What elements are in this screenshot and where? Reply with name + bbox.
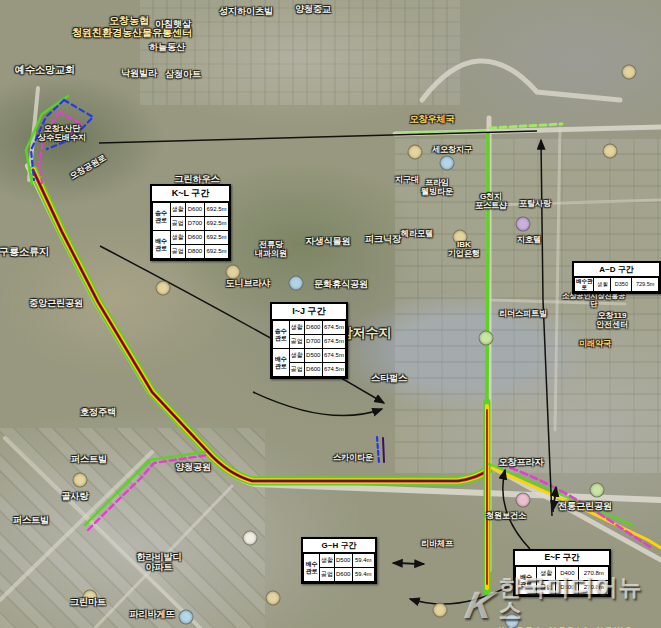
pipe-diameter-cell: D600 bbox=[304, 363, 322, 377]
map-label: 오창농협 bbox=[109, 15, 149, 27]
pipe-diameter-cell: D600 bbox=[185, 231, 204, 245]
map-label: 청원보건소 bbox=[486, 511, 526, 520]
map-label: 스타펄스 bbox=[371, 373, 407, 383]
pipe-diameter-cell: D500 bbox=[556, 581, 579, 595]
map-label: 리바체프 bbox=[421, 539, 453, 548]
pipe-length-cell: 674.5m bbox=[322, 349, 345, 363]
pipe-diameter-cell: D500 bbox=[334, 554, 352, 568]
table-row: 배수 관로생활D600692.5m bbox=[153, 231, 229, 245]
pipe-diameter-cell: D700 bbox=[185, 217, 204, 231]
map-label: 전류당 내과의원 bbox=[255, 240, 287, 258]
pipeline-bundle-purple bbox=[33, 170, 488, 481]
poi-dot bbox=[433, 603, 448, 618]
map-label: 양청중교 bbox=[295, 4, 331, 14]
table-row: 배수관로생활D350729.5m bbox=[575, 278, 659, 292]
map-label: 그린마트 bbox=[70, 597, 106, 607]
pipe-type-cell: 공업 bbox=[170, 217, 185, 231]
pipeline-bundle-yellow bbox=[33, 170, 488, 481]
map-label: 문화휴식공원 bbox=[314, 279, 368, 289]
pipe-type-cell: 생활 bbox=[320, 554, 334, 568]
map-label: 양청공원 bbox=[175, 462, 211, 472]
map-label: 예수소망교회 bbox=[15, 64, 75, 76]
pipe-group-cell: 배수 관로 bbox=[273, 349, 290, 377]
map-label: 성지하이츠빌 bbox=[219, 6, 273, 16]
table-row: 송수 관로생활D600674.5m bbox=[273, 321, 346, 335]
pipe-diameter-cell: D400 bbox=[556, 567, 579, 581]
pipe-type-cell: 생활 bbox=[170, 203, 185, 217]
poi-dot bbox=[179, 610, 194, 625]
pipe-length-cell: 692.5m bbox=[204, 203, 228, 217]
section-table: 송수 관로생활D600674.5m공업D700674.5m배수 관로생활D500… bbox=[272, 320, 346, 377]
pipe-type-cell: 공업 bbox=[537, 581, 556, 595]
pipe-length-cell: 674.5m bbox=[322, 335, 345, 349]
map-label: 자생식물원 bbox=[306, 236, 351, 246]
section-table: 배수 관로생활D50059.4m공업D60059.4m bbox=[303, 553, 375, 582]
line-north-boundary bbox=[99, 131, 537, 143]
section-title: I~J 구간 bbox=[272, 304, 346, 320]
map-label: G천지 포스트샵 bbox=[475, 192, 507, 210]
poi-dot bbox=[603, 144, 618, 159]
pipe-diameter-cell: D600 bbox=[185, 203, 204, 217]
pipe-group-cell: 송수 관로 bbox=[273, 321, 290, 349]
pipe-type-cell: 공업 bbox=[289, 363, 304, 377]
map-label: 오창우체국 bbox=[410, 114, 455, 124]
map-label: 리더스피트빌 bbox=[499, 309, 547, 318]
road-grid-east-3 bbox=[555, 128, 560, 430]
pipe-diameter-cell: D350 bbox=[611, 278, 632, 292]
pipe-length-cell: 59.4m bbox=[352, 554, 374, 568]
section-box-kl[interactable]: K~L 구간 송수 관로생활D600692.5m공업D700692.5m배수 관… bbox=[150, 184, 231, 261]
table-row: 배수 관로생활D50059.4m bbox=[304, 554, 375, 568]
map-label: 아침햇살 bbox=[155, 19, 191, 29]
poi-dot bbox=[440, 156, 455, 171]
pipe-diameter-cell: D700 bbox=[304, 335, 322, 349]
map-label: 지구대 bbox=[395, 175, 419, 184]
section-box-gh[interactable]: G~H 구간 배수 관로생활D50059.4m공업D60059.4m bbox=[301, 537, 377, 584]
pipeline-bundle-red bbox=[33, 170, 488, 481]
map-label: 파리바게뜨 bbox=[130, 609, 175, 619]
table-row: 배수 관로생활D500674.5m bbox=[273, 349, 346, 363]
pipe-length-cell: 674.5m bbox=[322, 321, 345, 335]
arrow-gh-double-left bbox=[393, 563, 424, 564]
map-label: 프라임 웰빙타운 bbox=[421, 178, 453, 196]
road-ring-north bbox=[422, 61, 620, 100]
map-screenshot: 오창농협청원친환경농산물유통센터예수소망교회아침햇살하늘동산낙원빌라삼청아트성지… bbox=[0, 0, 661, 628]
map-label: 세오창지구 bbox=[432, 145, 472, 154]
map-label: 스카이타운 bbox=[333, 453, 373, 462]
pipe-length-cell: 729.5m bbox=[632, 278, 659, 292]
pipe-length-cell: 692.5m bbox=[204, 217, 228, 231]
section-box-ef[interactable]: E~F 구간 배수 관로생활D400270.8m공업D500270.8m bbox=[513, 549, 611, 597]
pipe-diameter-cell: D600 bbox=[304, 321, 322, 335]
pipe-length-cell: 692.5m bbox=[204, 245, 228, 259]
pipe-group-cell: 배수 관로 bbox=[153, 231, 171, 259]
section-box-ad[interactable]: A~D 구간 배수관로생활D350729.5m bbox=[572, 261, 661, 294]
section-title: A~D 구간 bbox=[574, 263, 659, 277]
map-label: 퍼스트빌 bbox=[71, 454, 107, 464]
pipe-type-cell: 생활 bbox=[289, 349, 304, 363]
table-row: 배수 관로생활D400270.8m bbox=[516, 567, 609, 581]
map-label: 낙원빌라 bbox=[121, 68, 157, 78]
poi-dot bbox=[73, 473, 88, 488]
poi-dot bbox=[479, 331, 494, 346]
pipe-type-cell: 공업 bbox=[170, 245, 185, 259]
poi-dot bbox=[516, 493, 531, 508]
section-title: E~F 구간 bbox=[515, 551, 609, 566]
poi-dot bbox=[156, 281, 171, 296]
pipe-group-cell: 배수관로 bbox=[575, 278, 594, 292]
section-table: 배수관로생활D350729.5m bbox=[574, 277, 659, 292]
map-label: 하늘동산 bbox=[149, 42, 185, 52]
map-label: 호정주택 bbox=[80, 407, 116, 417]
map-label: 전통근린공원 bbox=[558, 501, 612, 511]
pipe-type-cell: 생활 bbox=[289, 321, 304, 335]
poi-dot bbox=[622, 65, 637, 80]
section-table: 배수 관로생활D400270.8m공업D500270.8m bbox=[515, 566, 609, 595]
map-label: 구룡소류지 bbox=[0, 246, 49, 258]
poi-dot bbox=[516, 217, 531, 232]
pipe-length-cell: 270.8m bbox=[579, 567, 609, 581]
table-row: 송수 관로생활D600692.5m bbox=[153, 203, 229, 217]
map-label: 골사랑 bbox=[62, 491, 89, 501]
section-box-ij[interactable]: I~J 구간 송수 관로생활D600674.5m공업D700674.5m배수 관… bbox=[270, 302, 348, 379]
section-title: G~H 구간 bbox=[303, 539, 375, 553]
pipe-diameter-cell: D500 bbox=[304, 349, 322, 363]
pipeline-bundle-green bbox=[33, 170, 488, 481]
dashed-blue-center bbox=[377, 437, 379, 463]
pipeline-green-north bbox=[487, 134, 488, 402]
arrow-ij-to-route bbox=[253, 392, 382, 416]
arrow-ef-to-market bbox=[410, 584, 513, 604]
pipe-length-cell: 270.8m bbox=[579, 581, 609, 595]
poi-dot bbox=[505, 614, 520, 628]
poi-dot bbox=[243, 531, 258, 546]
pipe-type-cell: 공업 bbox=[320, 568, 334, 582]
map-label: 오창119 안전센터 bbox=[596, 311, 628, 329]
poi-dot bbox=[289, 276, 304, 291]
pipe-group-cell: 송수 관로 bbox=[153, 203, 171, 231]
map-label: 포탈사랑 bbox=[519, 199, 551, 208]
pipe-length-cell: 692.5m bbox=[204, 231, 228, 245]
map-label: 오창1산단 상수도배수지 bbox=[38, 124, 86, 142]
pipe-diameter-cell: D600 bbox=[334, 568, 352, 582]
map-label: 그린하우스 bbox=[175, 174, 220, 184]
pipe-type-cell: 공업 bbox=[289, 335, 304, 349]
pipe-group-cell: 배수 관로 bbox=[304, 554, 320, 582]
pipe-group-cell: 배수 관로 bbox=[516, 567, 537, 595]
map-label: 소상공인시장진흥공단 bbox=[561, 292, 628, 308]
map-label: 한라비발디 아파트 bbox=[137, 552, 182, 573]
poi-dot bbox=[590, 483, 605, 498]
map-label: 삼청아트 bbox=[165, 69, 201, 79]
poi-dot bbox=[408, 145, 423, 160]
pipe-type-cell: 생활 bbox=[594, 278, 611, 292]
pipe-type-cell: 생활 bbox=[537, 567, 556, 581]
map-label: 미래약국 bbox=[579, 339, 611, 348]
pipe-length-cell: 59.4m bbox=[352, 568, 374, 582]
pipe-length-cell: 674.5m bbox=[322, 363, 345, 377]
section-table: 송수 관로생활D600692.5m공업D700692.5m배수 관로생활D600… bbox=[152, 202, 229, 259]
map-label: 오창프라자 bbox=[499, 457, 544, 467]
pipe-diameter-cell: D800 bbox=[185, 245, 204, 259]
mark-purple-center bbox=[383, 438, 384, 462]
map-label: 지호텔 bbox=[517, 235, 541, 244]
pipe-type-cell: 생활 bbox=[170, 231, 185, 245]
section-title: K~L 구간 bbox=[152, 186, 229, 202]
map-label: 피크닉장 bbox=[365, 234, 401, 244]
map-label: 헤라모텔 bbox=[401, 229, 433, 238]
road-grid-east-1 bbox=[490, 200, 661, 205]
map-label: IBK 기업은행 bbox=[448, 240, 480, 258]
poi-dot bbox=[266, 591, 281, 606]
map-label: 퍼스트빌 bbox=[13, 515, 49, 525]
map-label: 중앙근린공원 bbox=[29, 298, 83, 308]
map-label: 도니브라샤 bbox=[226, 278, 271, 288]
